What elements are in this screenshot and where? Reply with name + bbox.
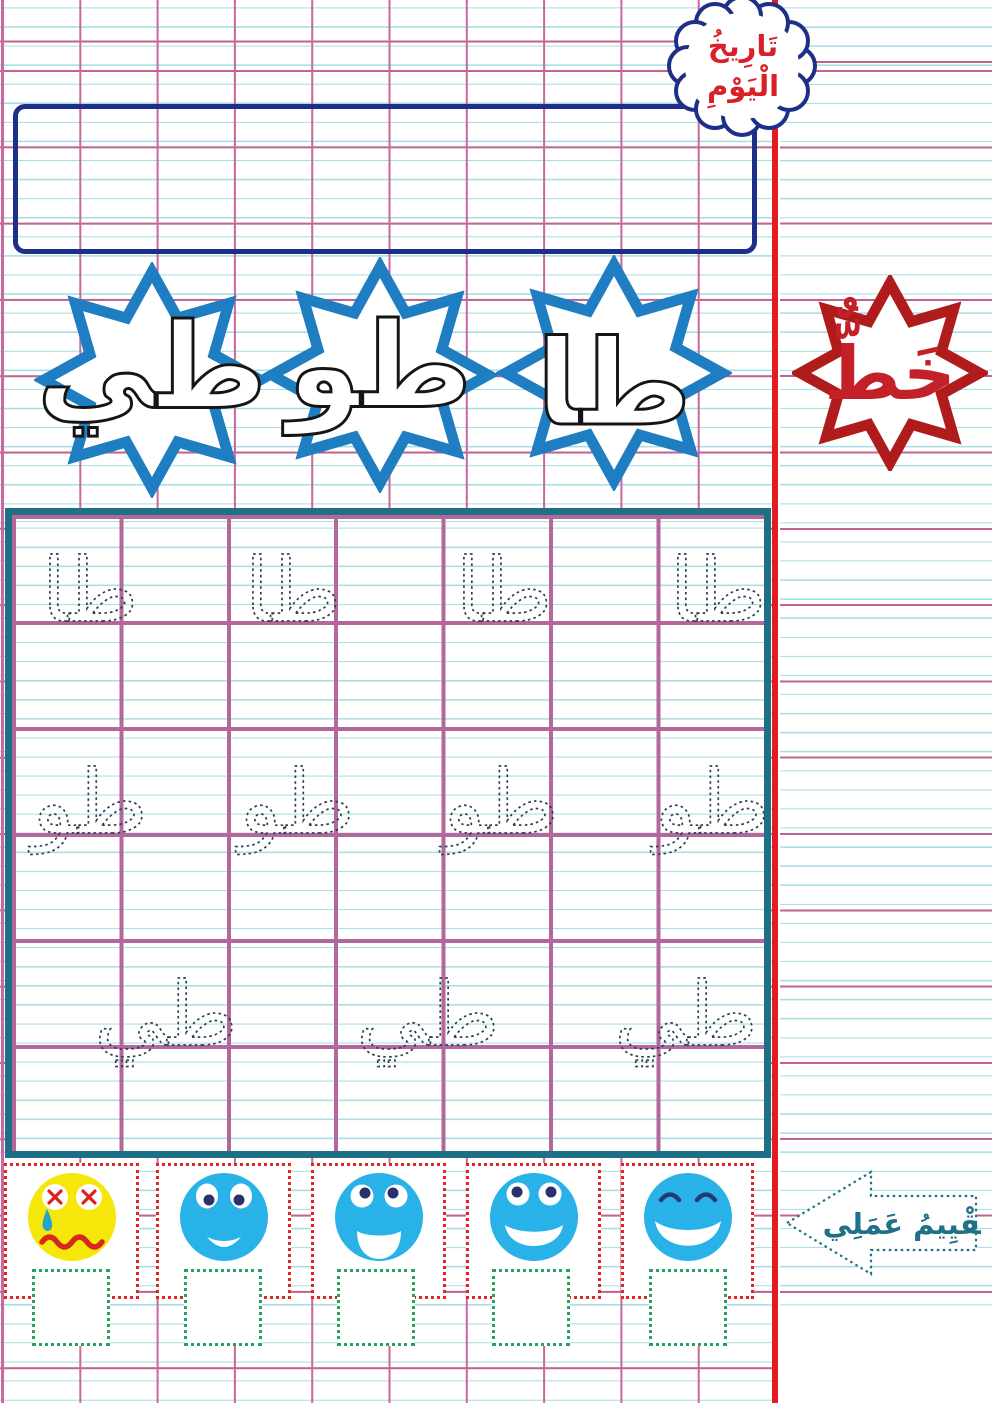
letter-star-tay-alif: طا bbox=[496, 255, 732, 491]
pupil bbox=[233, 1195, 244, 1206]
pupil bbox=[511, 1187, 522, 1198]
date-cloud: تَارِيخُ الْيَوْمِ bbox=[662, 0, 822, 142]
margin-line bbox=[772, 0, 778, 1403]
khat-star-badge: خَطٌّ bbox=[792, 275, 988, 471]
star-letter-label: طي bbox=[37, 298, 268, 437]
tracing-grid-area[interactable] bbox=[5, 508, 771, 1158]
date-entry-box[interactable] bbox=[13, 104, 757, 254]
pupil bbox=[545, 1187, 556, 1198]
rating-checkbox-1[interactable] bbox=[32, 1269, 110, 1346]
face-circle bbox=[28, 1173, 116, 1261]
face-circle bbox=[644, 1173, 732, 1261]
star-letter-label: طا bbox=[536, 314, 691, 452]
star-letter-label: طو bbox=[282, 296, 472, 435]
delighted-face-icon[interactable] bbox=[642, 1171, 734, 1263]
letter-star-tay-waw: طو bbox=[262, 257, 498, 493]
neutral-face-icon[interactable] bbox=[333, 1171, 425, 1263]
cloud-date-line1: تَارِيخُ bbox=[708, 29, 778, 68]
face-circle bbox=[180, 1173, 268, 1261]
pupil bbox=[203, 1195, 214, 1206]
cloud-date-line2: الْيَوْمِ bbox=[707, 64, 779, 109]
letter-star-tay-ya: طي bbox=[34, 262, 270, 498]
face-circle bbox=[490, 1173, 578, 1261]
pupil bbox=[359, 1188, 370, 1199]
crying-face-icon[interactable] bbox=[26, 1171, 118, 1263]
worksheet-page: طي طو طا خَطٌّ تَارِيخُ الْيَوْمِ طا طا … bbox=[0, 0, 992, 1403]
evaluation-arrow-label: تَقْيِيمُ عَمَلِي bbox=[823, 1205, 981, 1244]
rating-checkbox-2[interactable] bbox=[184, 1269, 262, 1346]
pupil bbox=[387, 1188, 398, 1199]
rating-checkbox-3[interactable] bbox=[337, 1269, 415, 1346]
rating-checkbox-5[interactable] bbox=[649, 1269, 727, 1346]
rating-checkbox-4[interactable] bbox=[492, 1269, 570, 1346]
happy-face-icon[interactable] bbox=[488, 1171, 580, 1263]
notebook-grid-right bbox=[780, 0, 992, 1306]
evaluation-arrow: تَقْيِيمُ عَمَلِي bbox=[783, 1164, 981, 1282]
sad-face-icon[interactable] bbox=[178, 1171, 270, 1263]
